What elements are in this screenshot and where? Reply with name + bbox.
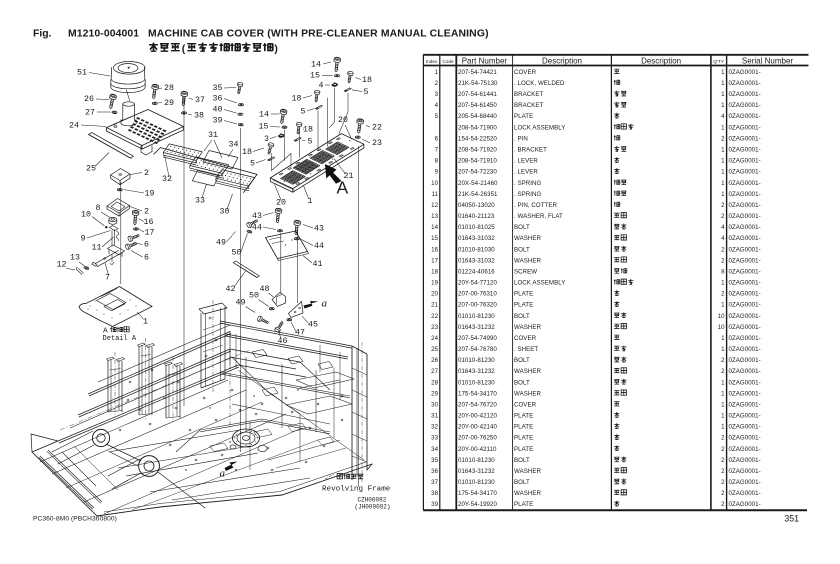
svg-text:22: 22	[372, 124, 382, 133]
svg-text:5: 5	[364, 88, 369, 97]
svg-text:PLATE: PLATE	[514, 424, 533, 431]
svg-text:0ZAG0001-: 0ZAG0001-	[729, 324, 761, 331]
svg-text:207-54-74421: 207-54-74421	[458, 69, 497, 76]
svg-text:0ZAG0001-: 0ZAG0001-	[729, 102, 761, 109]
svg-text:42: 42	[226, 285, 236, 294]
svg-text:25: 25	[431, 346, 438, 353]
svg-text:34: 34	[431, 446, 438, 453]
svg-text:1: 1	[721, 158, 725, 165]
svg-text:8: 8	[96, 204, 101, 213]
svg-text:0ZAG0001-: 0ZAG0001-	[729, 158, 761, 165]
svg-text:BOLT: BOLT	[514, 457, 530, 464]
svg-text:5: 5	[308, 138, 313, 147]
svg-text:1: 1	[721, 390, 725, 397]
svg-text:20Y-00-42120: 20Y-00-42120	[458, 413, 497, 420]
svg-text:PLATE: PLATE	[514, 501, 533, 508]
svg-text:2: 2	[721, 490, 725, 497]
svg-text:COVER: COVER	[514, 402, 537, 409]
svg-text:3: 3	[264, 135, 269, 144]
svg-text:0ZAG0001-: 0ZAG0001-	[729, 446, 761, 453]
svg-text:Fig.: Fig.	[33, 29, 52, 40]
svg-text:37: 37	[195, 96, 205, 105]
svg-text:14: 14	[259, 111, 269, 120]
svg-text:Description: Description	[542, 56, 582, 65]
svg-text:6: 6	[144, 241, 149, 250]
svg-text:1: 1	[721, 335, 725, 342]
svg-text:PLATE: PLATE	[514, 446, 533, 453]
svg-text:9: 9	[81, 235, 86, 244]
svg-text:31: 31	[208, 131, 218, 140]
svg-text:0ZAG0001-: 0ZAG0001-	[729, 69, 761, 76]
svg-text:0ZAG0001-: 0ZAG0001-	[729, 390, 761, 397]
svg-text:10: 10	[81, 211, 91, 220]
svg-text:2: 2	[721, 368, 725, 375]
svg-text:WASHER: WASHER	[514, 324, 542, 331]
svg-text:16: 16	[431, 246, 438, 253]
svg-text:PC360-8M0 (PBCH360800): PC360-8M0 (PBCH360800)	[33, 516, 117, 523]
svg-text:2: 2	[721, 291, 725, 298]
svg-text:1: 1	[721, 69, 725, 76]
svg-text:1: 1	[721, 402, 725, 409]
svg-text:2: 2	[721, 246, 725, 253]
svg-text:A: A	[103, 328, 108, 335]
svg-text:40: 40	[213, 106, 223, 115]
svg-text:29: 29	[164, 99, 174, 108]
svg-text:SCREW: SCREW	[514, 268, 537, 275]
svg-text:30: 30	[431, 402, 438, 409]
svg-text:BOLT: BOLT	[514, 246, 530, 253]
svg-text:1: 1	[721, 180, 725, 187]
svg-text:0ZAG0001-: 0ZAG0001-	[729, 147, 761, 154]
svg-text:0ZAG0001-: 0ZAG0001-	[729, 313, 761, 320]
svg-text:1: 1	[143, 318, 148, 327]
svg-text:1: 1	[721, 124, 725, 131]
svg-text:4: 4	[721, 235, 725, 242]
svg-text:5: 5	[435, 113, 439, 120]
svg-text:20Y-54-77120: 20Y-54-77120	[458, 280, 497, 287]
svg-text:LOCK ASSEMBLY: LOCK ASSEMBLY	[514, 124, 565, 131]
svg-text:. SPRING: . SPRING	[514, 180, 542, 187]
svg-text:10: 10	[718, 324, 725, 331]
svg-text:2: 2	[721, 257, 725, 264]
svg-text:0ZAG0001-: 0ZAG0001-	[729, 169, 761, 176]
svg-text:1: 1	[435, 69, 439, 76]
svg-text:0ZAG0001-: 0ZAG0001-	[729, 457, 761, 464]
svg-text:1: 1	[721, 80, 725, 87]
svg-text:01010-81025: 01010-81025	[458, 224, 495, 231]
svg-text:01643-31232: 01643-31232	[458, 368, 495, 375]
svg-text:0ZAG0001-: 0ZAG0001-	[729, 346, 761, 353]
svg-text:44: 44	[252, 224, 262, 233]
svg-text:27: 27	[431, 368, 438, 375]
svg-text:LOCK ASSEMBLY: LOCK ASSEMBLY	[514, 280, 565, 287]
svg-text:1: 1	[721, 346, 725, 353]
svg-text:7: 7	[105, 274, 110, 283]
svg-text:0ZAG0001-: 0ZAG0001-	[729, 368, 761, 375]
svg-text:15: 15	[431, 235, 438, 242]
svg-text:49: 49	[236, 299, 246, 308]
svg-text:17: 17	[431, 257, 438, 264]
svg-text:Serial Number: Serial Number	[742, 56, 793, 65]
svg-text:38: 38	[194, 112, 204, 121]
svg-text:207-00-76320: 207-00-76320	[458, 302, 497, 309]
svg-text:41: 41	[313, 260, 323, 269]
svg-text:45: 45	[308, 321, 318, 330]
svg-text:48: 48	[260, 285, 270, 294]
svg-text:18: 18	[292, 95, 302, 104]
svg-text:15: 15	[259, 123, 269, 132]
svg-text:Detail A: Detail A	[103, 335, 137, 343]
svg-text:(: (	[182, 43, 186, 55]
svg-text:28: 28	[431, 379, 438, 386]
svg-text:26: 26	[84, 95, 94, 104]
svg-text:1: 1	[721, 191, 725, 198]
svg-text:36: 36	[431, 468, 438, 475]
svg-text:): )	[274, 43, 278, 55]
svg-text:24: 24	[431, 335, 438, 342]
svg-text:14: 14	[431, 224, 438, 231]
svg-text:6: 6	[435, 135, 439, 142]
svg-text:2: 2	[721, 468, 725, 475]
svg-text:0ZAG0001-: 0ZAG0001-	[729, 180, 761, 187]
svg-text:25: 25	[86, 165, 96, 174]
svg-text:2: 2	[721, 446, 725, 453]
svg-text:0ZAG0001-: 0ZAG0001-	[729, 191, 761, 198]
svg-text:. LEVER: . LEVER	[514, 169, 538, 176]
svg-text:A: A	[337, 178, 349, 198]
svg-text:2: 2	[144, 208, 149, 217]
svg-text:0ZAG0001-: 0ZAG0001-	[729, 280, 761, 287]
svg-text:1: 1	[721, 302, 725, 309]
svg-text:1: 1	[721, 280, 725, 287]
svg-text:0ZAG0001-: 0ZAG0001-	[729, 424, 761, 431]
svg-text:PLATE: PLATE	[514, 291, 533, 298]
svg-text:WASHER: WASHER	[514, 368, 542, 375]
svg-text:2: 2	[435, 80, 439, 87]
svg-text:. SPRING: . SPRING	[514, 191, 542, 198]
svg-text:50: 50	[232, 249, 242, 258]
svg-text:PLATE: PLATE	[514, 302, 533, 309]
svg-text:207-54-76720: 207-54-76720	[458, 402, 497, 409]
svg-text:13: 13	[431, 213, 438, 220]
svg-text:21K-54-26351: 21K-54-26351	[458, 191, 498, 198]
svg-text:19: 19	[145, 190, 155, 199]
svg-text:207-54-61441: 207-54-61441	[458, 91, 497, 98]
svg-text:10: 10	[431, 180, 438, 187]
svg-text:01010-81030: 01010-81030	[458, 246, 495, 253]
svg-text:M1210-004001: M1210-004001	[68, 29, 139, 40]
svg-text:MACHINE CAB COVER (WITH PRE-CL: MACHINE CAB COVER (WITH PRE-CLEANER MANU…	[148, 29, 489, 40]
svg-text:0ZAG0001-: 0ZAG0001-	[729, 291, 761, 298]
svg-text:44: 44	[314, 242, 324, 251]
svg-text:17: 17	[145, 229, 155, 238]
svg-text:0ZAG0001-: 0ZAG0001-	[729, 435, 761, 442]
svg-text:175-54-34170: 175-54-34170	[458, 490, 497, 497]
svg-text:0ZAG0001-: 0ZAG0001-	[729, 235, 761, 242]
svg-text:PLATE: PLATE	[514, 435, 533, 442]
svg-text:01010-81230: 01010-81230	[458, 313, 495, 320]
svg-text:01643-31232: 01643-31232	[458, 468, 495, 475]
svg-text:2: 2	[721, 501, 725, 508]
svg-text:WASHER: WASHER	[514, 390, 542, 397]
svg-text:BOLT: BOLT	[514, 379, 530, 386]
svg-text:208-54-71920: 208-54-71920	[458, 147, 497, 154]
svg-text:BRACKET: BRACKET	[514, 91, 544, 98]
svg-text:1: 1	[721, 91, 725, 98]
svg-text:5: 5	[301, 108, 306, 117]
svg-text:Index: Index	[426, 59, 438, 64]
svg-text:0ZAG0001-: 0ZAG0001-	[729, 357, 761, 364]
svg-text:2: 2	[721, 357, 725, 364]
svg-text:0ZAG0001-: 0ZAG0001-	[729, 202, 761, 209]
svg-text:207-54-61450: 207-54-61450	[458, 102, 497, 109]
svg-text:23: 23	[372, 139, 382, 148]
svg-text:207-00-76310: 207-00-76310	[458, 291, 497, 298]
svg-text:37: 37	[431, 479, 438, 486]
svg-text:a: a	[220, 468, 226, 480]
svg-text:32: 32	[162, 175, 172, 184]
svg-text:23: 23	[431, 324, 438, 331]
svg-text:Revolving Frame: Revolving Frame	[322, 486, 391, 494]
svg-text:207-54-74990: 207-54-74990	[458, 335, 497, 342]
svg-text:PLATE: PLATE	[514, 113, 533, 120]
svg-text:a: a	[322, 298, 328, 310]
svg-text:(JH009082): (JH009082)	[355, 504, 391, 511]
svg-text:4: 4	[435, 102, 439, 109]
svg-text:. PIN, COTTER: . PIN, COTTER	[514, 202, 557, 209]
svg-text:43: 43	[314, 225, 324, 234]
svg-text:4: 4	[721, 113, 725, 120]
svg-text:20X-54-21460: 20X-54-21460	[458, 180, 498, 187]
svg-text:6: 6	[144, 254, 149, 263]
svg-text:Code: Code	[442, 59, 454, 64]
svg-text:01643-31232: 01643-31232	[458, 324, 495, 331]
svg-text:32: 32	[431, 424, 438, 431]
svg-text:13: 13	[70, 254, 80, 263]
svg-text:207-00-76250: 207-00-76250	[458, 435, 497, 442]
svg-text:29: 29	[431, 390, 438, 397]
svg-text:51: 51	[77, 69, 87, 78]
svg-text:0ZAG0001-: 0ZAG0001-	[729, 302, 761, 309]
svg-text:10: 10	[718, 313, 725, 320]
svg-text:01224-40616: 01224-40616	[458, 268, 495, 275]
svg-text:19: 19	[431, 280, 438, 287]
svg-text:30: 30	[220, 208, 230, 217]
svg-text:. WASHER, FLAT: . WASHER, FLAT	[514, 213, 563, 220]
svg-text:01643-31032: 01643-31032	[458, 235, 495, 242]
svg-text:18: 18	[242, 148, 252, 157]
svg-text:4: 4	[319, 82, 324, 91]
svg-text:2: 2	[721, 479, 725, 486]
svg-text:28: 28	[164, 84, 174, 93]
svg-text:208-54-71900: 208-54-71900	[458, 124, 497, 131]
svg-text:1: 1	[721, 424, 725, 431]
svg-text:0ZAG0001-: 0ZAG0001-	[729, 468, 761, 475]
svg-text:20Y-54-19920: 20Y-54-19920	[458, 501, 497, 508]
svg-text:. SHEET: . SHEET	[514, 346, 538, 353]
svg-text:2: 2	[721, 457, 725, 464]
svg-text:WASHER: WASHER	[514, 235, 542, 242]
svg-text:33: 33	[195, 197, 205, 206]
svg-text:0ZAG0001-: 0ZAG0001-	[729, 80, 761, 87]
svg-text:175-54-34170: 175-54-34170	[458, 390, 497, 397]
svg-text:24: 24	[69, 122, 79, 131]
svg-text:BOLT: BOLT	[514, 313, 530, 320]
svg-text:4: 4	[721, 224, 725, 231]
svg-text:01010-81230: 01010-81230	[458, 357, 495, 364]
svg-text:27: 27	[85, 109, 95, 118]
svg-text:207-54-76780: 207-54-76780	[458, 346, 497, 353]
svg-text:BOLT: BOLT	[514, 357, 530, 364]
svg-text:18: 18	[431, 268, 438, 275]
svg-text:01643-31032: 01643-31032	[458, 257, 495, 264]
svg-text:43: 43	[252, 212, 262, 221]
svg-text:14: 14	[311, 61, 321, 70]
svg-text:. LOCK, WELDED: . LOCK, WELDED	[514, 80, 565, 87]
svg-text:1: 1	[721, 413, 725, 420]
svg-text:PLATE: PLATE	[514, 413, 533, 420]
svg-text:208-54-71910: 208-54-71910	[458, 158, 497, 165]
svg-text:9: 9	[435, 169, 439, 176]
svg-text:18: 18	[362, 76, 372, 85]
svg-text:0ZAG0001-: 0ZAG0001-	[729, 224, 761, 231]
svg-text:. PIN: . PIN	[514, 135, 528, 142]
svg-text:35: 35	[213, 84, 223, 93]
svg-text:. LEVER: . LEVER	[514, 158, 538, 165]
svg-text:COVER: COVER	[514, 69, 537, 76]
svg-text:01010-81230: 01010-81230	[458, 479, 495, 486]
svg-text:8: 8	[435, 158, 439, 165]
svg-text:0ZAG0001-: 0ZAG0001-	[729, 379, 761, 386]
svg-text:36: 36	[213, 95, 223, 104]
svg-text:38: 38	[431, 490, 438, 497]
svg-text:0ZAG0001-: 0ZAG0001-	[729, 501, 761, 508]
svg-text:01010-81230: 01010-81230	[458, 379, 495, 386]
svg-text:0ZAG0001-: 0ZAG0001-	[729, 479, 761, 486]
svg-text:5: 5	[250, 160, 255, 169]
svg-text:15: 15	[310, 72, 320, 81]
svg-text:33: 33	[431, 435, 438, 442]
svg-text:04050-13020: 04050-13020	[458, 202, 495, 209]
svg-text:12: 12	[57, 261, 67, 270]
svg-text:1: 1	[721, 379, 725, 386]
svg-text:WASHER: WASHER	[514, 257, 542, 264]
svg-text:16: 16	[144, 218, 154, 227]
svg-text:205-54-68440: 205-54-68440	[458, 113, 497, 120]
svg-text:BOLT: BOLT	[514, 479, 530, 486]
svg-text:154-54-22520: 154-54-22520	[458, 135, 497, 142]
svg-text:39: 39	[213, 117, 223, 126]
svg-text:18: 18	[303, 126, 313, 135]
svg-text:BOLT: BOLT	[514, 224, 530, 231]
svg-text:0ZAG0001-: 0ZAG0001-	[729, 246, 761, 253]
svg-text:2: 2	[721, 435, 725, 442]
svg-text:31: 31	[431, 413, 438, 420]
svg-text:0ZAG0001-: 0ZAG0001-	[729, 124, 761, 131]
svg-text:0ZAG0001-: 0ZAG0001-	[729, 268, 761, 275]
svg-text:8: 8	[721, 268, 725, 275]
svg-text:50: 50	[249, 292, 259, 301]
svg-text:2: 2	[721, 202, 725, 209]
svg-text:COVER: COVER	[514, 335, 537, 342]
svg-text:20Y-00-42140: 20Y-00-42140	[458, 424, 497, 431]
svg-text:0ZAG0001-: 0ZAG0001-	[729, 335, 761, 342]
svg-text:Description: Description	[641, 56, 681, 65]
svg-text:20: 20	[431, 291, 438, 298]
svg-text:Part Number: Part Number	[462, 56, 508, 65]
svg-text:39: 39	[431, 501, 438, 508]
svg-text:0ZAG0001-: 0ZAG0001-	[729, 257, 761, 264]
svg-text:01010-81230: 01010-81230	[458, 457, 495, 464]
svg-text:21: 21	[431, 302, 438, 309]
svg-text:0ZAG0001-: 0ZAG0001-	[729, 213, 761, 220]
svg-text:WASHER: WASHER	[514, 490, 542, 497]
svg-text:21K-54-75130: 21K-54-75130	[458, 80, 498, 87]
svg-text:2: 2	[721, 135, 725, 142]
svg-text:0ZAG0001-: 0ZAG0001-	[729, 490, 761, 497]
svg-text:20Y-00-42110: 20Y-00-42110	[458, 446, 497, 453]
svg-text:0ZAG0001-: 0ZAG0001-	[729, 413, 761, 420]
svg-text:207-54-72230: 207-54-72230	[458, 169, 497, 176]
svg-text:0ZAG0001-: 0ZAG0001-	[729, 402, 761, 409]
svg-text:20: 20	[338, 116, 348, 125]
svg-text:12: 12	[431, 202, 438, 209]
svg-text:1: 1	[721, 147, 725, 154]
svg-text:22: 22	[431, 313, 438, 320]
svg-text:3: 3	[435, 91, 439, 98]
svg-text:0ZAG0001-: 0ZAG0001-	[729, 113, 761, 120]
svg-text:1: 1	[721, 102, 725, 109]
svg-text:01640-21123: 01640-21123	[458, 213, 495, 220]
svg-text:BRACKET: BRACKET	[514, 102, 544, 109]
svg-text:11: 11	[432, 191, 439, 198]
svg-text:Q'TY: Q'TY	[713, 59, 724, 64]
svg-text:351: 351	[784, 514, 799, 524]
svg-text:34: 34	[229, 141, 239, 150]
svg-text:1: 1	[721, 169, 725, 176]
svg-text:7: 7	[435, 147, 439, 154]
svg-text:2: 2	[721, 213, 725, 220]
svg-text:35: 35	[431, 457, 438, 464]
svg-text:2: 2	[144, 169, 149, 178]
svg-text:WASHER: WASHER	[514, 468, 542, 475]
svg-text:0ZAG0001-: 0ZAG0001-	[729, 91, 761, 98]
svg-text:26: 26	[431, 357, 438, 364]
svg-text:. BRACKET: . BRACKET	[514, 147, 547, 154]
svg-text:49: 49	[216, 239, 226, 248]
svg-text:0ZAG0001-: 0ZAG0001-	[729, 135, 761, 142]
svg-text:CZH00082: CZH00082	[358, 497, 387, 504]
svg-text:11: 11	[92, 244, 102, 253]
